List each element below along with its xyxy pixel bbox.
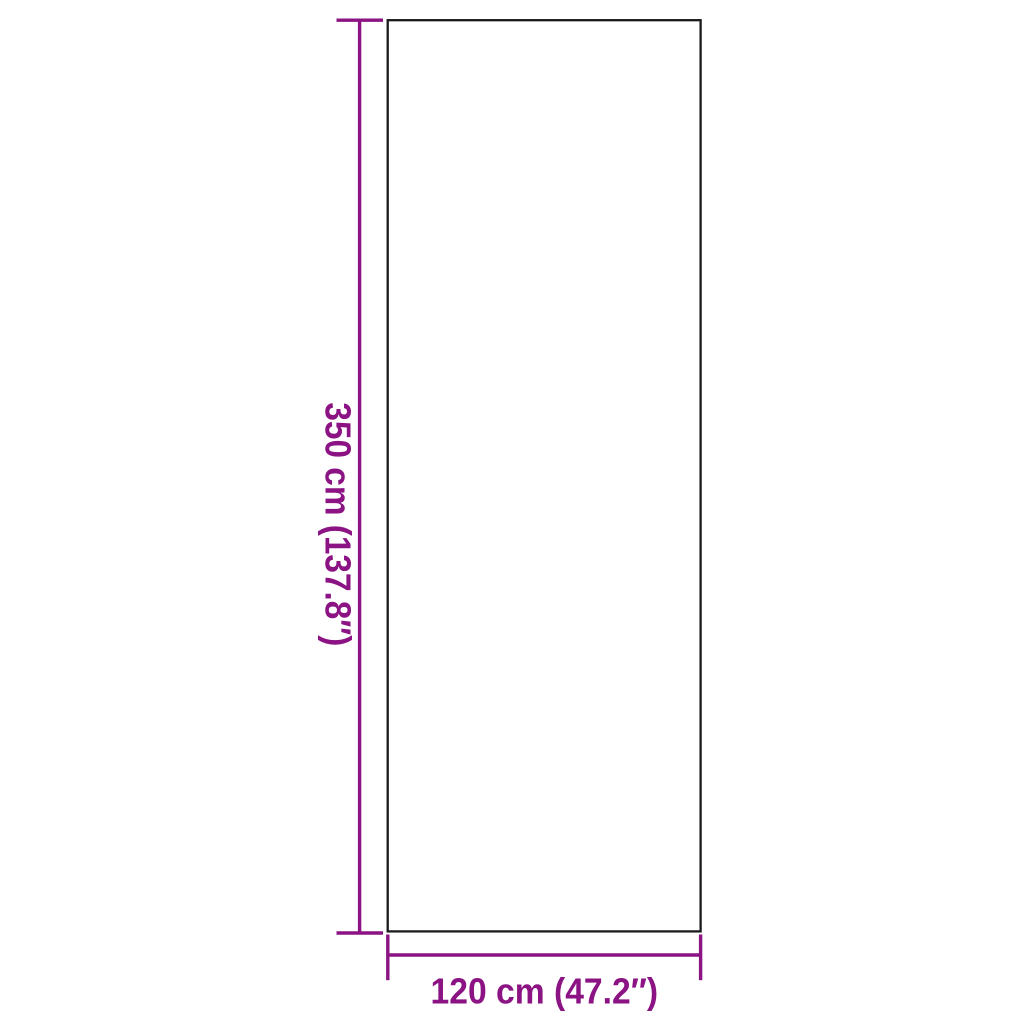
svg-text:120 cm (47.2″): 120 cm (47.2″)	[431, 971, 659, 1012]
svg-text:350 cm (137.8″): 350 cm (137.8″)	[317, 402, 358, 646]
